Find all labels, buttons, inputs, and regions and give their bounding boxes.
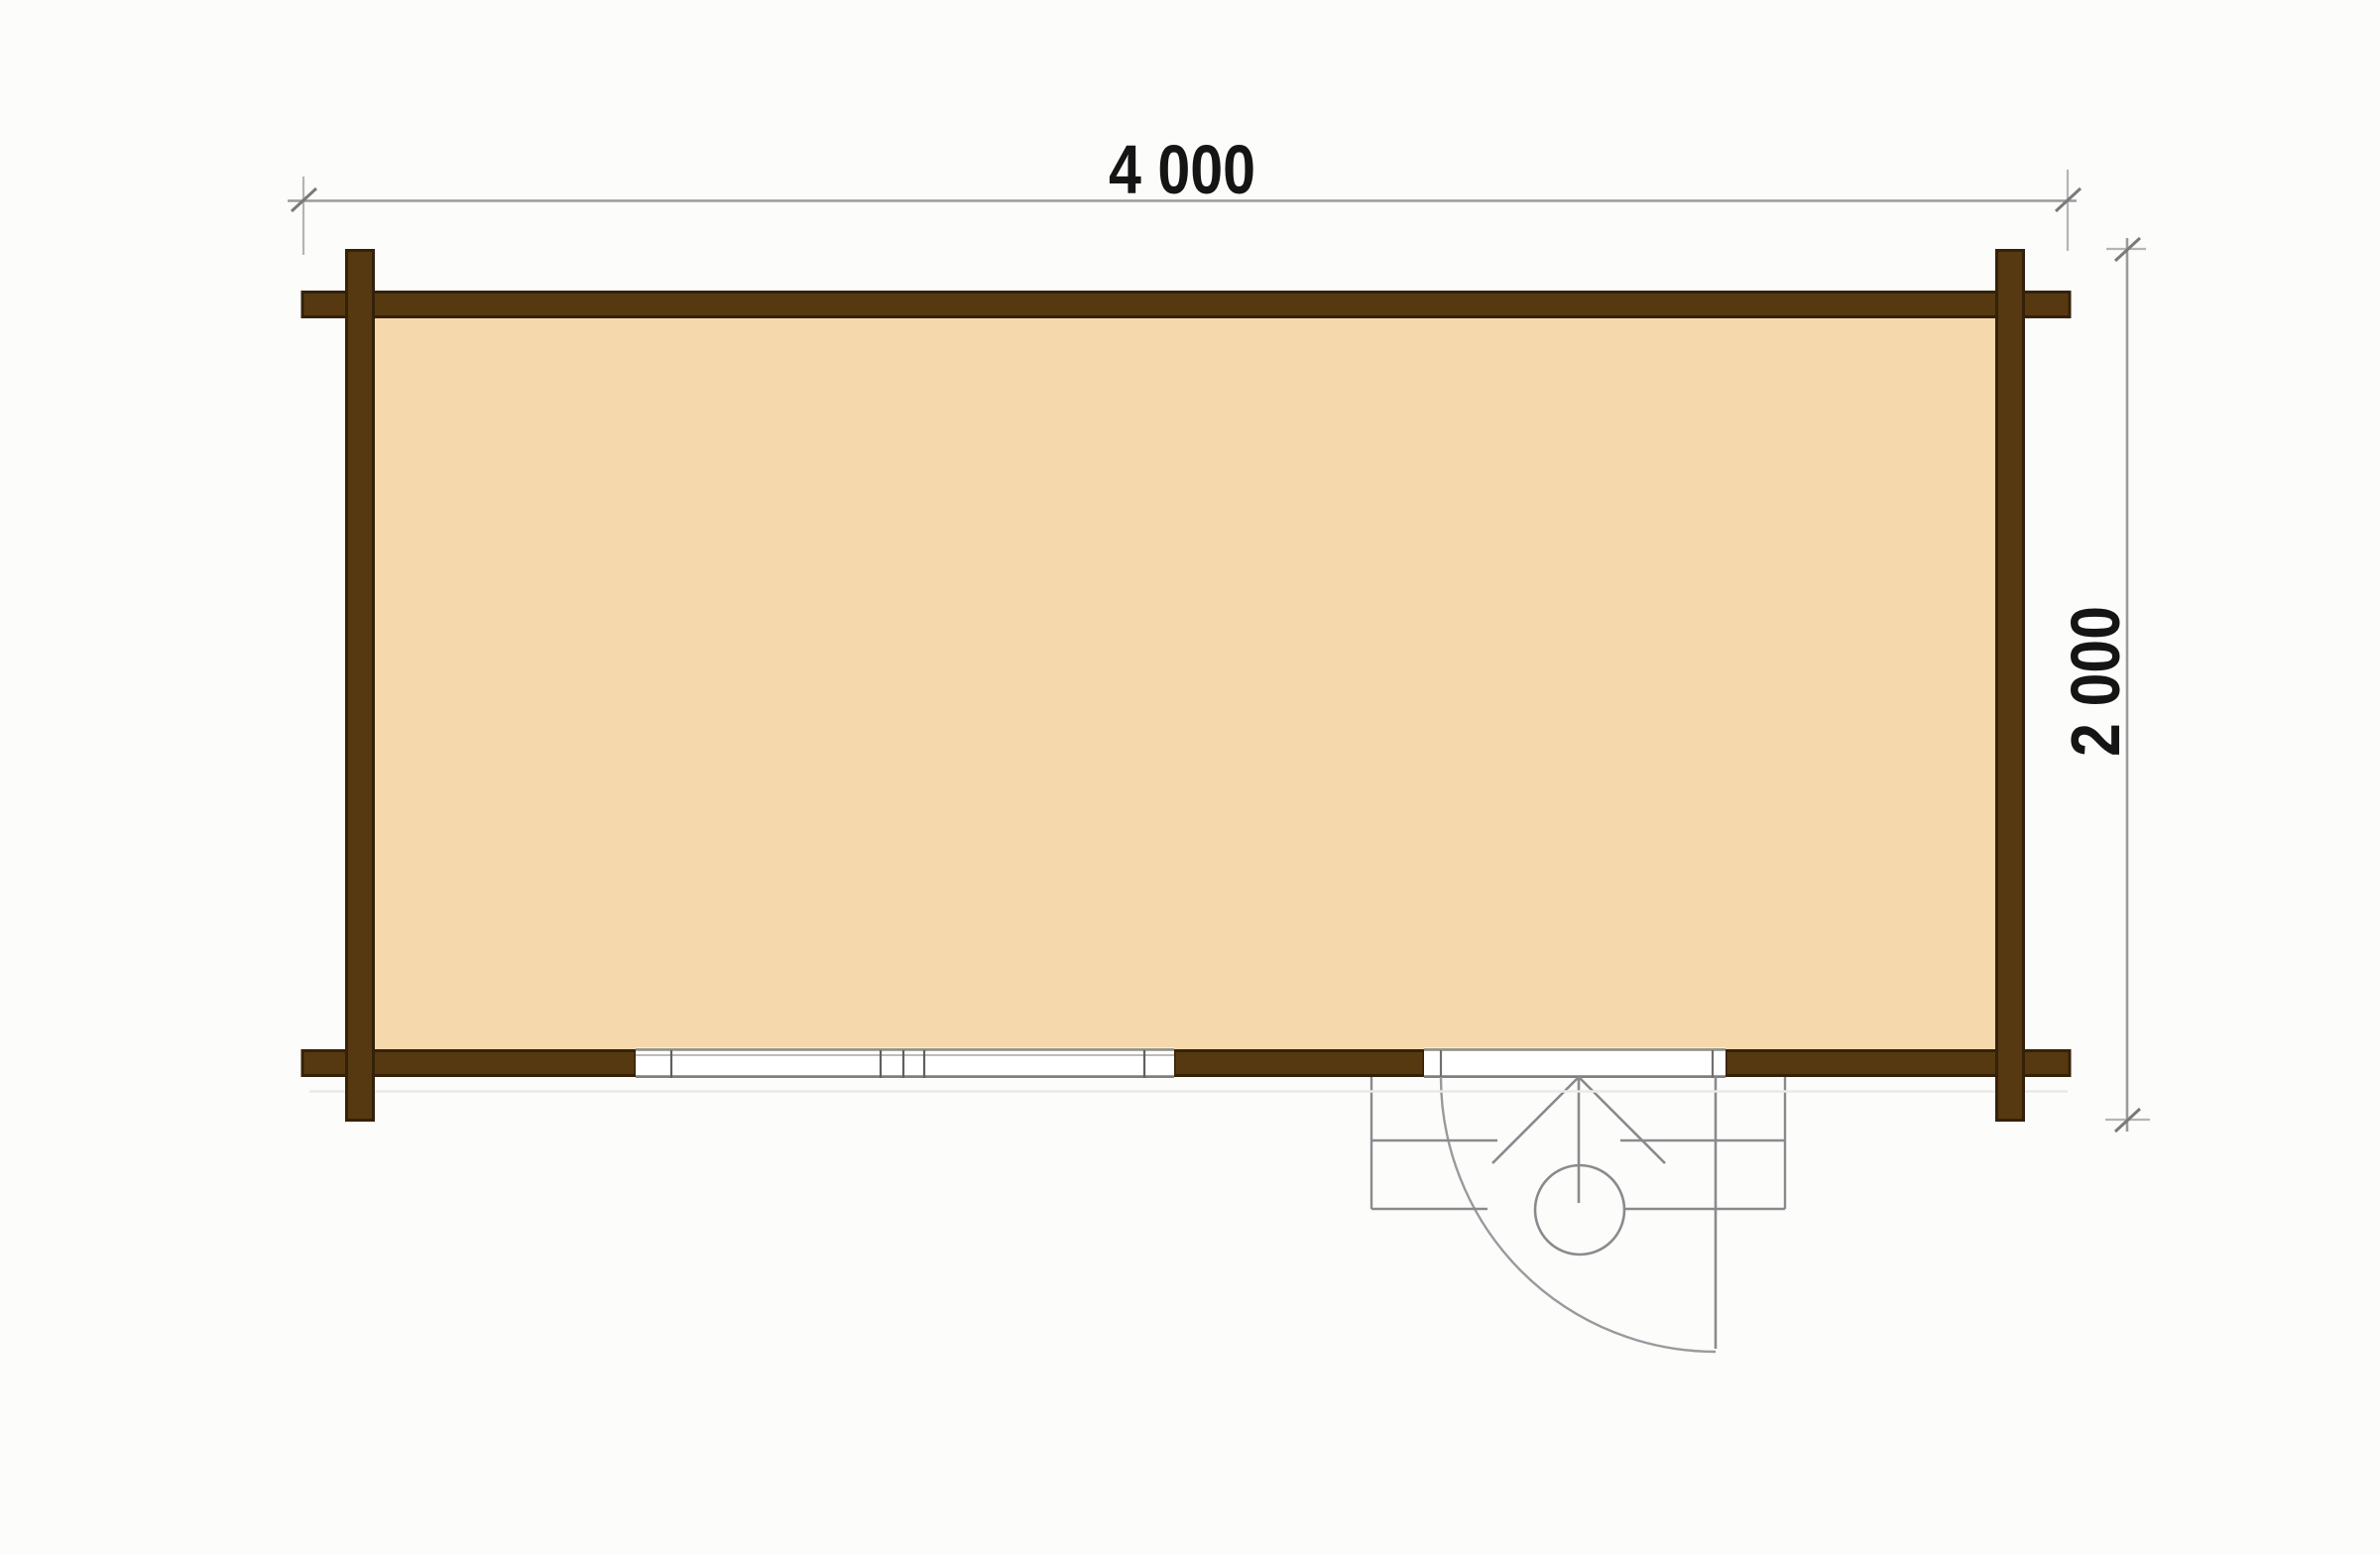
svg-text:4 000: 4 000: [1109, 131, 1255, 208]
svg-text:2 000: 2 000: [2057, 606, 2134, 757]
